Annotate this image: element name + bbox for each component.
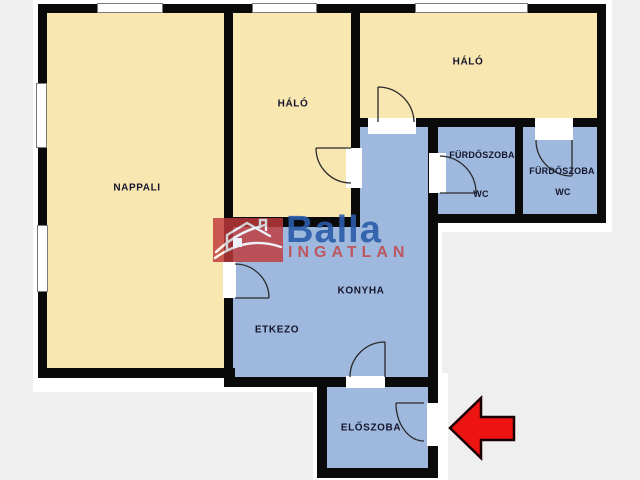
wall-eloszoba-bottom	[317, 468, 438, 478]
wall-nappali-bottom	[38, 368, 235, 378]
door-nappali	[223, 262, 236, 298]
label-konyha: KONYHA	[338, 286, 385, 297]
logo-tagline-text: INGATLAN	[288, 245, 409, 261]
label-halo-middle: HÁLÓ	[278, 99, 309, 110]
door-halo-middle	[346, 148, 362, 188]
window-nappali-left-upper	[36, 83, 47, 148]
label-wc-right: WC	[555, 187, 570, 197]
window-halo-right-top	[415, 3, 528, 13]
window-nappali-left-lower	[37, 225, 48, 292]
door-eloszoba	[346, 376, 385, 388]
wall-left	[38, 4, 47, 378]
wall-bathroom-divider	[515, 118, 523, 223]
label-furdoszoba-left: FÜRDŐSZOBA	[449, 150, 515, 160]
wall-etkezo-bottom	[224, 377, 438, 387]
wall-eloszoba-left	[317, 377, 327, 478]
label-halo-right: HÁLÓ	[453, 57, 484, 68]
room-halo-middle	[230, 8, 356, 222]
label-furdoszoba-right: FÜRDŐSZOBA	[529, 166, 595, 176]
window-nappali-top	[97, 3, 163, 13]
door-halo-right-konyha	[368, 118, 416, 134]
label-nappali: NAPPALI	[113, 183, 160, 194]
label-etkezo: ETKEZO	[255, 325, 299, 336]
wall-halo-konyha	[351, 4, 360, 227]
door-entrance	[427, 403, 444, 446]
window-halo-middle-top	[252, 3, 317, 13]
logo-house-icon	[213, 218, 283, 262]
label-wc-left: WC	[473, 189, 488, 199]
floorplan-image: NAPPALI HÁLÓ HÁLÓ FÜRDŐSZOBA WC FÜRDŐSZO…	[0, 0, 640, 480]
wall-nappali-right	[224, 4, 233, 387]
wall-right	[597, 4, 606, 223]
label-eloszoba: ELŐSZOBA	[341, 423, 401, 434]
door-furdoszoba-left	[429, 153, 446, 193]
door-furdoszoba-right	[535, 118, 573, 140]
room-furdoszoba-left	[434, 122, 520, 219]
